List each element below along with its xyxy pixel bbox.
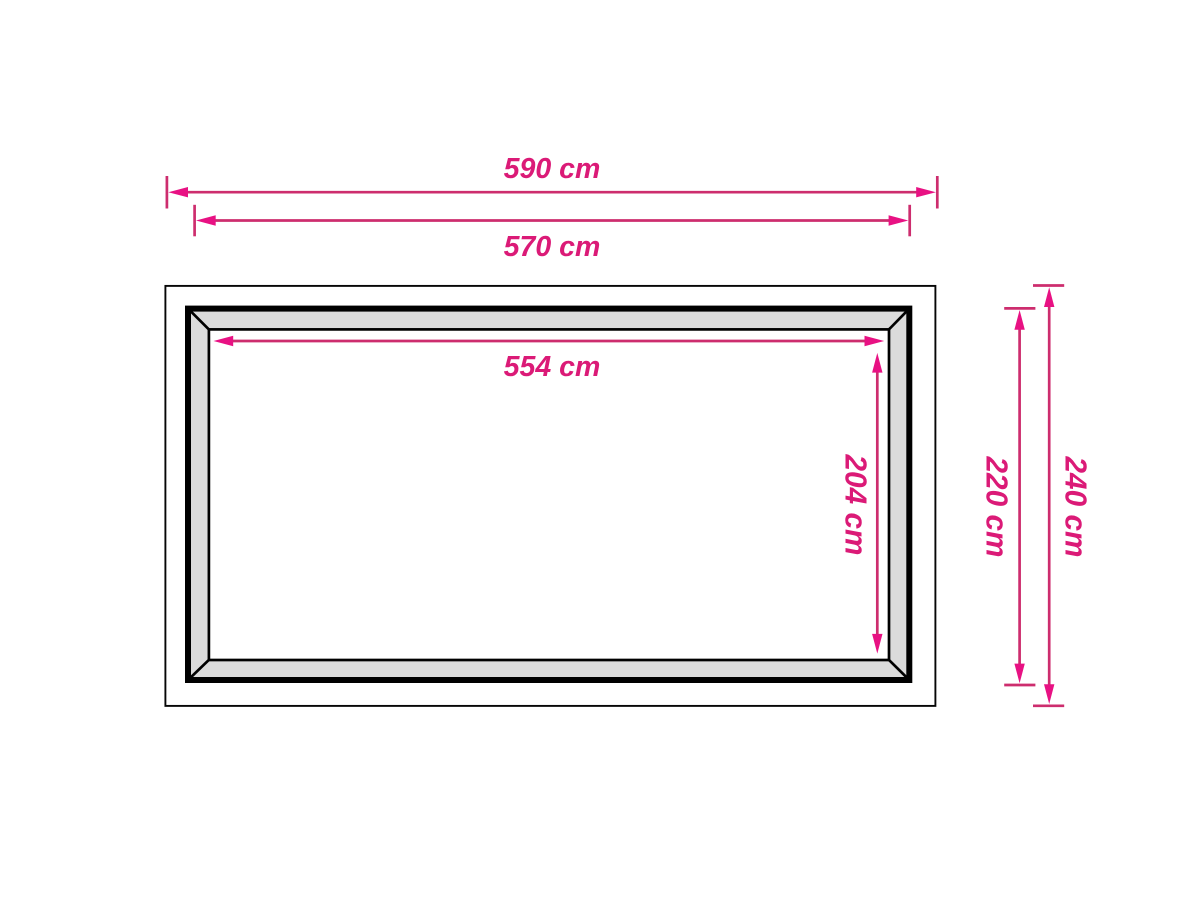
svg-text:590 cm: 590 cm [504, 153, 601, 185]
svg-text:554 cm: 554 cm [504, 351, 601, 383]
svg-text:220 cm: 220 cm [979, 456, 1014, 558]
svg-text:240 cm: 240 cm [1058, 456, 1093, 558]
svg-text:570 cm: 570 cm [504, 231, 601, 263]
svg-text:204 cm: 204 cm [838, 454, 873, 556]
